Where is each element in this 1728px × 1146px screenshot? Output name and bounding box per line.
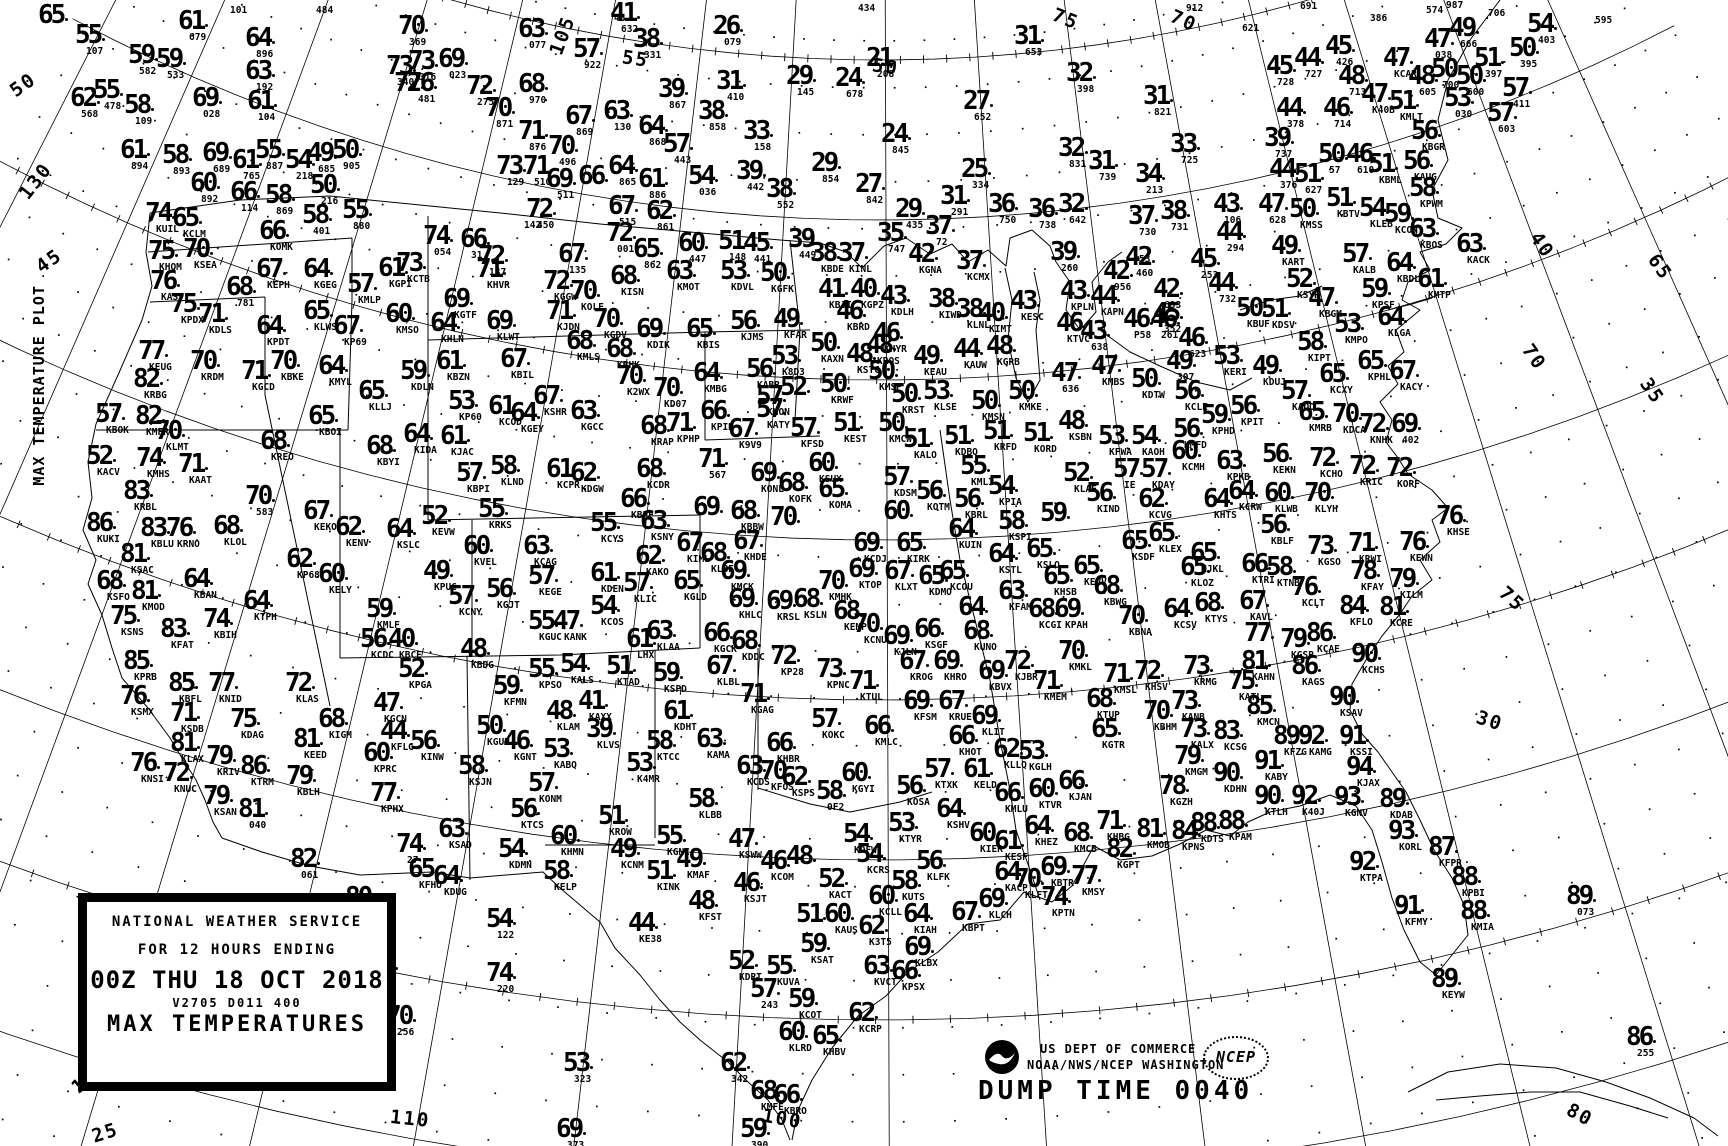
station-plot: 49KEAU (913, 343, 947, 378)
station-id: KMRB (1309, 424, 1332, 434)
station-plot: 51KDSV (1261, 296, 1295, 331)
station-plot: 57KFSD (790, 415, 824, 450)
station-dot-icon (895, 899, 898, 902)
station-dot-icon (1170, 714, 1173, 717)
station-dot-icon (1240, 359, 1243, 362)
station-id: 114 (241, 204, 260, 214)
station-dot-icon (1455, 850, 1458, 853)
station-dot-icon (199, 221, 202, 224)
station-dot-icon (680, 676, 683, 679)
station-plot: 61894 (120, 137, 150, 172)
station-id: KLAA (657, 643, 680, 653)
station-dot-icon (1085, 654, 1088, 657)
station-dot-icon (573, 314, 576, 317)
station-dot-icon (635, 209, 638, 212)
station-id: 079 (724, 38, 743, 48)
station-plot: 71KTUL (849, 668, 883, 703)
station-code-fragment: 912 (1186, 4, 1203, 14)
station-plot: 92K40J (1291, 783, 1325, 818)
station-plot: 70583 (245, 483, 275, 518)
station-plot: 65KLLJ (358, 378, 392, 413)
station-id: 122 (497, 931, 516, 941)
station-dot-icon (570, 752, 573, 755)
station-dot-icon (715, 179, 718, 182)
station-plot: 56KBLF (1260, 512, 1294, 547)
station-plot: 47KBGM (1308, 285, 1342, 320)
station-dot-icon (893, 348, 896, 351)
station-plot: 65KGTR (1091, 716, 1125, 751)
station-dot-icon (815, 1002, 818, 1005)
station-dot-icon (923, 546, 926, 549)
station-id: KISN (621, 288, 644, 298)
station-dot-icon (1451, 42, 1454, 45)
station-dot-icon (1377, 574, 1380, 577)
station-dot-icon (257, 722, 260, 725)
station-id: 054 (434, 248, 453, 258)
station-dot-icon (157, 766, 160, 769)
station-plot: 70 (770, 504, 800, 530)
station-dot-icon (427, 374, 430, 377)
station-dot-icon (725, 114, 728, 117)
station-plot: 56KTCS (510, 796, 544, 831)
station-dot-icon (805, 1035, 808, 1038)
station-dot-icon (437, 744, 440, 747)
station-plot: 64KMYL (318, 353, 352, 388)
station-plot: 56KPIT (1230, 393, 1264, 428)
station-code-fragment: 621 (1242, 24, 1259, 34)
station-dot-icon (1345, 157, 1348, 160)
station-id: KBZN (447, 373, 470, 383)
station-id: KHEZ (1035, 838, 1058, 848)
attribution-agency: NOAA/NWS/NCEP WASHINGTON (1027, 1058, 1224, 1072)
station-id: 642 (1069, 216, 1088, 226)
station-dot-icon (545, 87, 548, 90)
station-id: KMOT (677, 283, 700, 293)
station-id: KUKI (97, 535, 120, 545)
station-dot-icon (805, 486, 808, 489)
station-id: KINK (657, 883, 680, 893)
station-id: KCLT (1302, 599, 1325, 609)
station-plot: 44KE38 (628, 910, 662, 945)
station-id: 583 (256, 508, 275, 518)
station-id: KERI (1224, 368, 1247, 378)
station-dot-icon (577, 839, 580, 842)
station-id: KRIC (1360, 478, 1383, 488)
station-id: KRIV (217, 768, 240, 778)
station-plot: 48KLAM (546, 698, 580, 733)
station-dot-icon (205, 24, 208, 27)
station-dot-icon (1162, 177, 1165, 180)
station-plot: 48KFST (688, 888, 722, 923)
station-dot-icon (757, 514, 760, 517)
station-plot: 49KMAF (676, 846, 710, 881)
station-dot-icon (713, 332, 716, 335)
station-dot-icon (1090, 836, 1093, 839)
station-plot: 51397 (1474, 45, 1504, 80)
station-plot: 32398 (1066, 60, 1096, 95)
station-id: 398 (1077, 85, 1096, 95)
station-dot-icon (1373, 157, 1376, 160)
station-dot-icon (637, 852, 640, 855)
station-dot-icon (1118, 732, 1121, 735)
station-plot: 68781 (226, 274, 256, 309)
station-plot: 65KCOU (939, 558, 973, 593)
station-id: KPHX (381, 805, 404, 815)
station-plot: 64KCRW (1228, 478, 1262, 513)
station-plot: 73KPNC (816, 656, 850, 691)
station-dot-icon (1346, 377, 1349, 380)
station-id: KEST (844, 435, 867, 445)
station-dot-icon (1201, 759, 1204, 762)
station-dot-icon (513, 592, 516, 595)
station-id: KCXY (1330, 386, 1353, 396)
station-plot: 47038 (1424, 26, 1454, 61)
station-plot: 67KP69 (333, 313, 367, 348)
station-plot: 64KMBG (693, 360, 727, 395)
legend-title: NATIONAL WEATHER SERVICE (87, 914, 387, 930)
station-plot: 21208 (866, 45, 896, 80)
station-plot: 57KHON (756, 383, 790, 418)
station-id: KMPO (1345, 336, 1368, 346)
station-plot: 72001 (606, 220, 636, 255)
station-dot-icon (320, 742, 323, 745)
station-plot: 70KRDM (190, 348, 224, 383)
station-dot-icon (625, 819, 628, 822)
station-dot-icon (895, 374, 898, 377)
station-id: KTXK (935, 781, 958, 791)
station-id: 401 (313, 227, 332, 237)
station-dot-icon (182, 434, 185, 437)
station-dot-icon (1015, 207, 1018, 210)
station-id: 894 (131, 162, 150, 172)
station-dot-icon (755, 432, 758, 435)
station-id: KGEY (521, 425, 544, 435)
station-plot: 51KBTV (1326, 185, 1360, 220)
station-dot-icon (1366, 609, 1369, 612)
station-dot-icon (1207, 732, 1210, 735)
station-dot-icon (1107, 334, 1110, 337)
station-dot-icon (1291, 141, 1294, 144)
station-dot-icon (1197, 147, 1200, 150)
station-dot-icon (851, 917, 854, 920)
station-plot: 76KNSI (130, 750, 164, 785)
station-plot: 58869 (265, 182, 295, 217)
station-id: 323 (574, 1075, 593, 1085)
station-plot: 57IE (1113, 456, 1143, 491)
station-plot: 65KPHL (1357, 348, 1391, 383)
station-dot-icon (592, 119, 595, 122)
station-id: KSAN (214, 808, 237, 818)
station-plot: 47KSWW (728, 826, 762, 861)
station-plot: 57KMLP (347, 271, 381, 306)
station-plot: 24845 (881, 121, 911, 156)
station-plot: 83KFAT (160, 616, 194, 651)
station-id: KLOZ (1191, 579, 1214, 589)
station-plot: 55887 (255, 137, 285, 172)
station-id: K40J (1302, 808, 1325, 818)
station-plot: 84KPNS (1171, 818, 1205, 853)
station-dot-icon (673, 634, 676, 637)
station-id: 603 (1498, 125, 1517, 135)
station-plot: 60KLRD (778, 1019, 812, 1054)
station-plot: 51627 (1294, 161, 1324, 196)
station-dot-icon (313, 562, 316, 565)
station-dot-icon (617, 526, 620, 529)
station-dot-icon (147, 699, 150, 702)
station-dot-icon (885, 929, 888, 932)
station-id: 725 (1181, 156, 1200, 166)
station-plot: 60KVEL (463, 533, 497, 568)
station-id: KAGS (1302, 678, 1325, 688)
station-id: KDDC (742, 653, 765, 663)
station-dot-icon (1324, 345, 1327, 348)
station-plot: 50KMSS (1289, 196, 1323, 231)
station-dot-icon (703, 862, 706, 865)
station-plot: 3772 (925, 213, 955, 248)
station-dot-icon (137, 619, 140, 622)
station-plot: 74KBIH (203, 606, 237, 641)
station-plot: 49KART (1271, 233, 1305, 268)
station-dot-icon (777, 992, 780, 995)
station-dot-icon (978, 915, 981, 918)
station-id: KDLN (411, 383, 434, 393)
station-id: KFLO (1350, 618, 1373, 628)
station-dot-icon (845, 882, 848, 885)
station-dot-icon (808, 780, 811, 783)
station-dot-icon (1554, 27, 1557, 30)
station-id: KEGE (539, 588, 562, 598)
station-dot-icon (1118, 369, 1121, 372)
station-id: KBOI (319, 428, 342, 438)
station-id: KGJT (497, 601, 520, 611)
station-id: KP68 (297, 571, 320, 581)
station-dot-icon (1350, 111, 1353, 114)
station-id: KTPA (1360, 874, 1383, 884)
station-dot-icon (1430, 164, 1433, 167)
station-dot-icon (272, 499, 275, 502)
station-dot-icon (813, 859, 816, 862)
station-id: KOKC (822, 731, 845, 741)
station-plot: 29145 (786, 63, 816, 98)
station-plot: 63KSNY (640, 508, 674, 543)
station-id: KMYL (329, 378, 352, 388)
station-dot-icon (1117, 299, 1120, 302)
station-dot-icon (813, 79, 816, 82)
station-dot-icon (667, 524, 670, 527)
station-id: K2WX (627, 388, 650, 398)
station-plot: 68KBYI (366, 433, 400, 468)
station-dot-icon (1361, 327, 1364, 330)
station-plot: 57KCNY (448, 583, 482, 618)
station-dot-icon (1240, 734, 1243, 737)
station-id: 750 (999, 216, 1018, 226)
station-plot: 38331 (633, 26, 663, 61)
station-dot-icon (653, 766, 656, 769)
station-id: KFST (699, 913, 722, 923)
station-dot-icon (448, 519, 451, 522)
station-id: KBIL (511, 371, 534, 381)
station-plot: 63KSAD (438, 816, 472, 851)
station-id: KBNA (1129, 628, 1152, 638)
station-plot: 580F2 (816, 778, 846, 813)
station-plot: 39442 (736, 158, 766, 193)
station-id: KTYR (899, 835, 922, 845)
station-plot: 34213 (1135, 161, 1165, 196)
station-dot-icon (210, 582, 213, 585)
station-dot-icon (460, 879, 463, 882)
station-dot-icon (555, 786, 558, 789)
station-dot-icon (1198, 834, 1201, 837)
station-dot-icon (605, 704, 608, 707)
station-id: KAAT (189, 476, 212, 486)
station-dot-icon (875, 1016, 878, 1019)
station-dot-icon (930, 704, 933, 707)
station-id: 845 (892, 146, 911, 156)
station-id: KAMG (1309, 748, 1332, 758)
legend-product: MAX TEMPERATURES (87, 1012, 387, 1037)
station-plot: 52KACV (86, 443, 120, 478)
station-plot: 60KMSO (385, 301, 419, 336)
station-dot-icon (330, 514, 333, 517)
station-dot-icon (475, 599, 478, 602)
station-code-fragment: 45 (614, 14, 625, 24)
station-id: KEVW (432, 528, 455, 538)
station-temp: 69 (693, 492, 718, 522)
station-dot-icon (177, 284, 180, 287)
station-dot-icon (793, 746, 796, 749)
station-id: KSEA (194, 261, 217, 271)
station-plot: 68KLOL (213, 513, 247, 548)
station-plot: 70K2WX (616, 363, 650, 398)
station-dot-icon (755, 842, 758, 845)
station-plot: 57KBOK (95, 401, 129, 436)
station-id: KTCC (657, 753, 680, 763)
station-dot-icon (1158, 439, 1161, 442)
station-plot: 86KCAE (1306, 620, 1340, 655)
station-dot-icon (183, 62, 186, 65)
station-id: KHLN (441, 335, 464, 345)
station-dot-icon (985, 610, 988, 613)
station-plot: 51KALO (903, 426, 937, 461)
station-dot-icon (1476, 31, 1479, 34)
station-dot-icon (797, 659, 800, 662)
station-id: KRDM (201, 373, 224, 383)
station-plot: 70KBNA (1118, 603, 1152, 638)
station-dot-icon (1053, 552, 1056, 555)
station-dot-icon (930, 917, 933, 920)
station-id: 887 (266, 162, 285, 172)
station-id: KBGM (1319, 310, 1342, 320)
station-id: 739 (1099, 173, 1118, 183)
station-id: KMOB (1147, 841, 1170, 851)
station-id: KLBL (717, 678, 740, 688)
station-dot-icon (760, 544, 763, 547)
station-plot: 71567 (698, 446, 728, 481)
station-dot-icon (1289, 457, 1292, 460)
station-dot-icon (1037, 304, 1040, 307)
station-plot: 60KELY (318, 561, 352, 596)
station-dot-icon (883, 857, 886, 860)
station-id: 892 (201, 195, 220, 205)
station-plot: 69 (693, 494, 723, 520)
station-dot-icon (908, 137, 911, 140)
station-id: KDAG (241, 731, 264, 741)
station-plot: 67KLBL (706, 653, 740, 688)
station-dot-icon (195, 686, 198, 689)
station-plot: 86KAGS (1291, 653, 1325, 688)
station-id: 842 (866, 196, 885, 206)
station-dot-icon (1514, 116, 1517, 119)
station-plot: 61KMTP (1417, 266, 1451, 301)
station-temp: 59 (1040, 498, 1065, 528)
station-dot-icon (880, 546, 883, 549)
station-plot: 63130 (603, 98, 633, 133)
station-plot: 62KDGW (570, 460, 604, 495)
station-id: 865 (619, 178, 638, 188)
station-dot-icon (950, 394, 953, 397)
station-code-fragment: 706 (1488, 9, 1505, 19)
station-id: KCSG (1224, 743, 1247, 753)
station-id: 858 (709, 123, 728, 133)
station-plot: 75KATL (1228, 668, 1262, 703)
station-plot: 31739 (1088, 148, 1118, 183)
station-id: KGTR (1102, 741, 1125, 751)
station-dot-icon (345, 369, 348, 372)
station-plot: 56KEKN (1262, 441, 1296, 476)
station-dot-icon (465, 62, 468, 65)
station-dot-icon (329, 218, 332, 221)
station-dot-icon (647, 502, 650, 505)
station-plot: 67KEPH (256, 256, 290, 291)
station-plot: 38731 (1160, 198, 1190, 233)
station-dot-icon (457, 326, 460, 329)
station-id: KANK (564, 633, 587, 643)
station-plot: 54KDMN (498, 836, 532, 871)
station-plot: 69KHLC (728, 586, 762, 621)
station-id: KGLD (684, 593, 707, 603)
station-id: KDLH (891, 308, 914, 318)
station-plot: 64KGEG (303, 256, 337, 291)
station-id: 352 (1164, 325, 1183, 335)
station-plot: 69028 (192, 85, 222, 120)
station-plot: 66KJAN (1058, 768, 1092, 803)
station-id: KBKE (281, 373, 304, 383)
station-plot: 61104 (247, 88, 277, 123)
station-dot-icon (918, 974, 921, 977)
station-dot-icon (1015, 557, 1018, 560)
station-id: KCRS (867, 866, 890, 876)
station-dot-icon (1198, 454, 1201, 457)
station-dot-icon (1193, 364, 1196, 367)
station-id: KSHV (947, 821, 970, 831)
station-dot-icon (1145, 619, 1148, 622)
station-plot: 79KSAN (203, 783, 237, 818)
station-dot-icon (910, 480, 913, 483)
station-plot: 53KDVL (720, 258, 754, 293)
station-dot-icon (270, 604, 273, 607)
station-id: KMSY (1082, 888, 1105, 898)
station-dot-icon (1067, 870, 1070, 873)
station-id: KPGA (409, 681, 432, 691)
station-id: KDSV (1272, 321, 1295, 331)
station-plot: 43KDLH (880, 283, 914, 318)
station-id: 867 (669, 101, 688, 111)
station-dot-icon (690, 147, 693, 150)
station-dot-icon (617, 609, 620, 612)
station-id: KBRO (784, 1107, 807, 1117)
station-id: KRFD (994, 443, 1017, 453)
station-dot-icon (1198, 704, 1201, 707)
